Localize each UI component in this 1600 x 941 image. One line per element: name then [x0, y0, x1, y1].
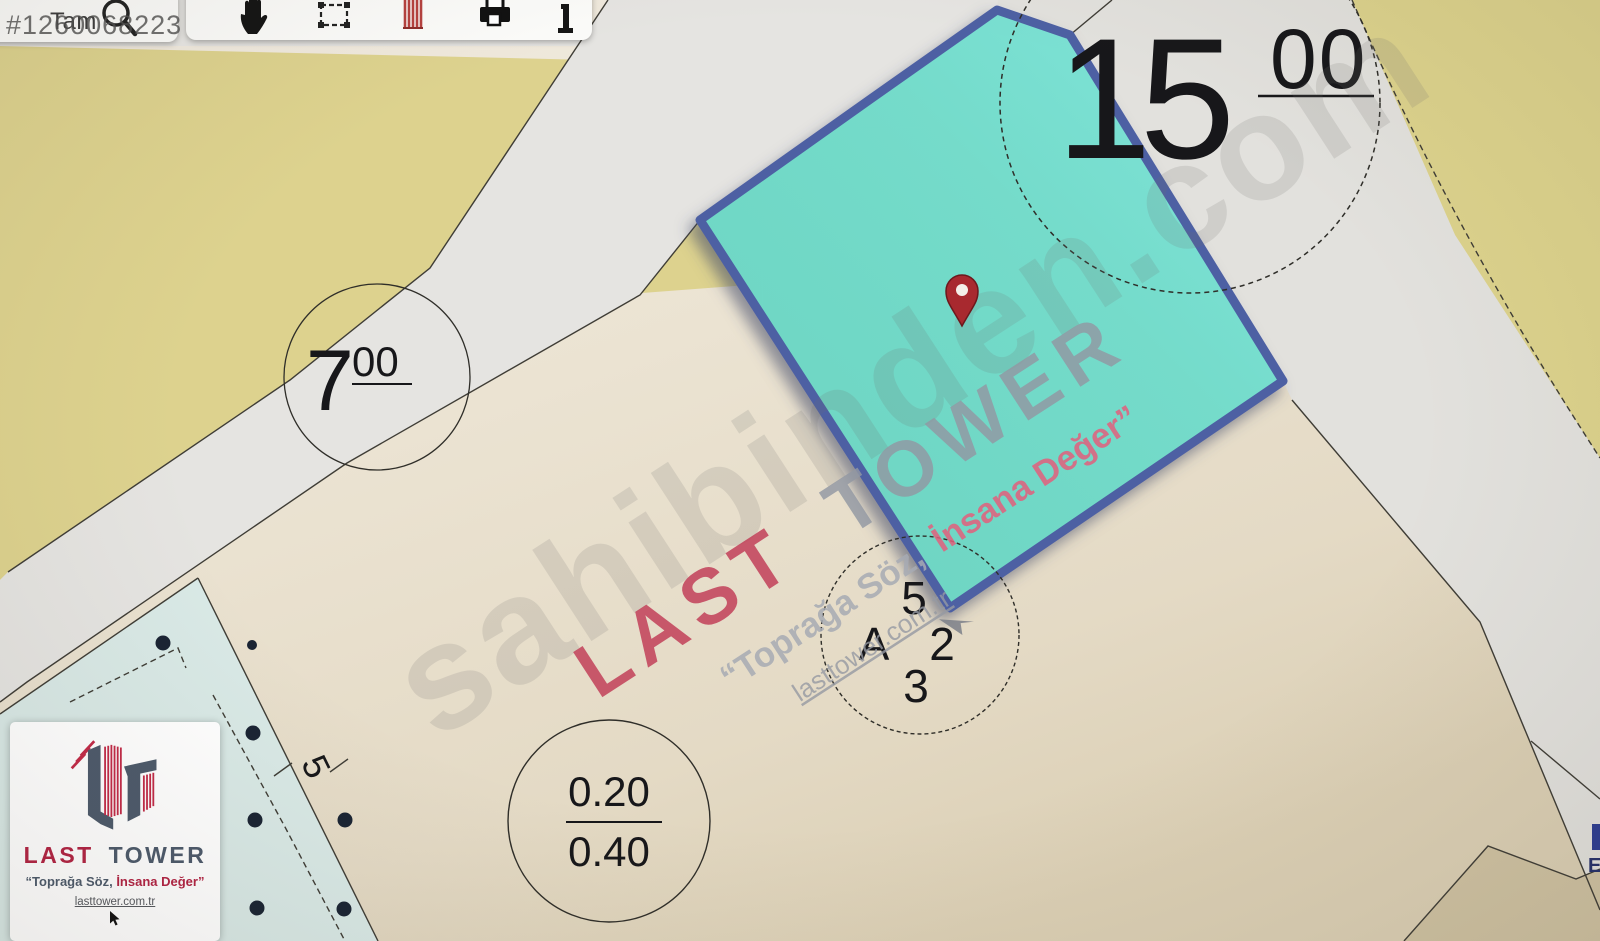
- agency-logo-mark: [69, 734, 161, 835]
- cursor-arrow-icon: [109, 911, 122, 926]
- pan-hand-icon[interactable]: [234, 0, 274, 38]
- agency-name-second: TOWER: [109, 842, 207, 868]
- agency-tagline-lead: “Toprağa Söz,: [26, 874, 113, 889]
- info-icon[interactable]: [554, 0, 578, 38]
- agency-name: LAST TOWER: [10, 842, 220, 869]
- road-width-side-sup: 00: [352, 338, 399, 385]
- agency-logo-card: LAST TOWER “Toprağa Söz, İnsana Değer” l…: [10, 722, 220, 941]
- road-width-side: 7: [306, 333, 354, 429]
- legend-stripes-icon[interactable]: [394, 0, 434, 38]
- zone-side-setback: 3: [903, 660, 929, 712]
- marquee-select-icon[interactable]: [314, 0, 354, 38]
- agency-tagline-accent: İnsana Değer”: [116, 874, 204, 889]
- edge-marker: [1592, 824, 1600, 850]
- ratio-numerator: 0.20: [568, 768, 650, 815]
- agency-name-first: LAST: [24, 842, 94, 868]
- agency-url: lasttower.com.tr: [75, 896, 156, 908]
- edge-label: E: [1588, 855, 1600, 877]
- ratio-denominator: 0.40: [568, 828, 650, 875]
- agency-tagline: “Toprağa Söz, İnsana Değer”: [10, 874, 220, 889]
- map-canvas[interactable]: 15 00 7 00 0.20 0.40 5 A 2 3 5 E sahibin…: [0, 0, 1600, 941]
- zoning-map-screenshot: 15 00 7 00 0.20 0.40 5 A 2 3 5 E sahibin…: [0, 0, 1600, 941]
- toolbar-tools-card: [186, 0, 592, 40]
- printer-icon[interactable]: [474, 0, 516, 38]
- listing-id: #1260068223: [6, 10, 182, 41]
